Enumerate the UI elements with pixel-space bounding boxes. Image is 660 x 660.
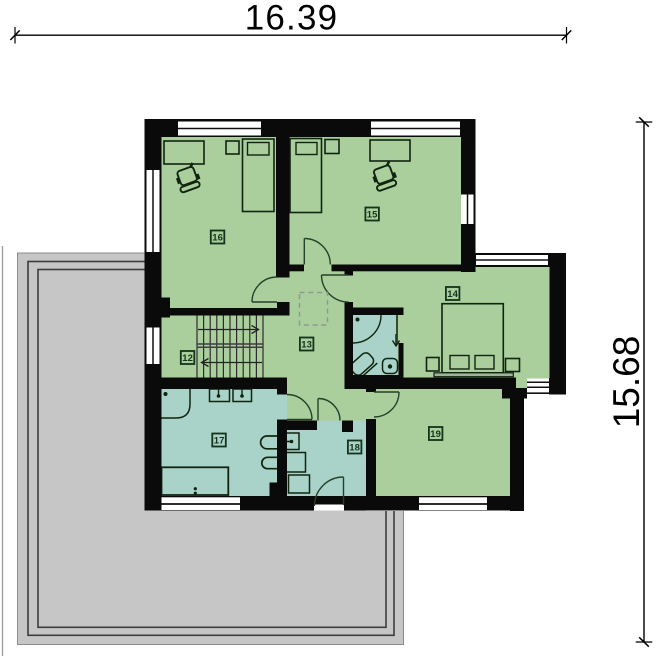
svg-text:19: 19 xyxy=(430,429,441,440)
svg-text:17: 17 xyxy=(214,435,225,446)
svg-text:14: 14 xyxy=(447,289,458,300)
svg-text:12: 12 xyxy=(182,353,193,364)
svg-text:16.39: 16.39 xyxy=(245,0,339,38)
svg-text:18: 18 xyxy=(349,442,360,453)
svg-text:16: 16 xyxy=(212,232,223,243)
svg-text:13: 13 xyxy=(301,339,312,350)
svg-text:15: 15 xyxy=(367,209,378,220)
svg-text:15.68: 15.68 xyxy=(606,336,647,429)
